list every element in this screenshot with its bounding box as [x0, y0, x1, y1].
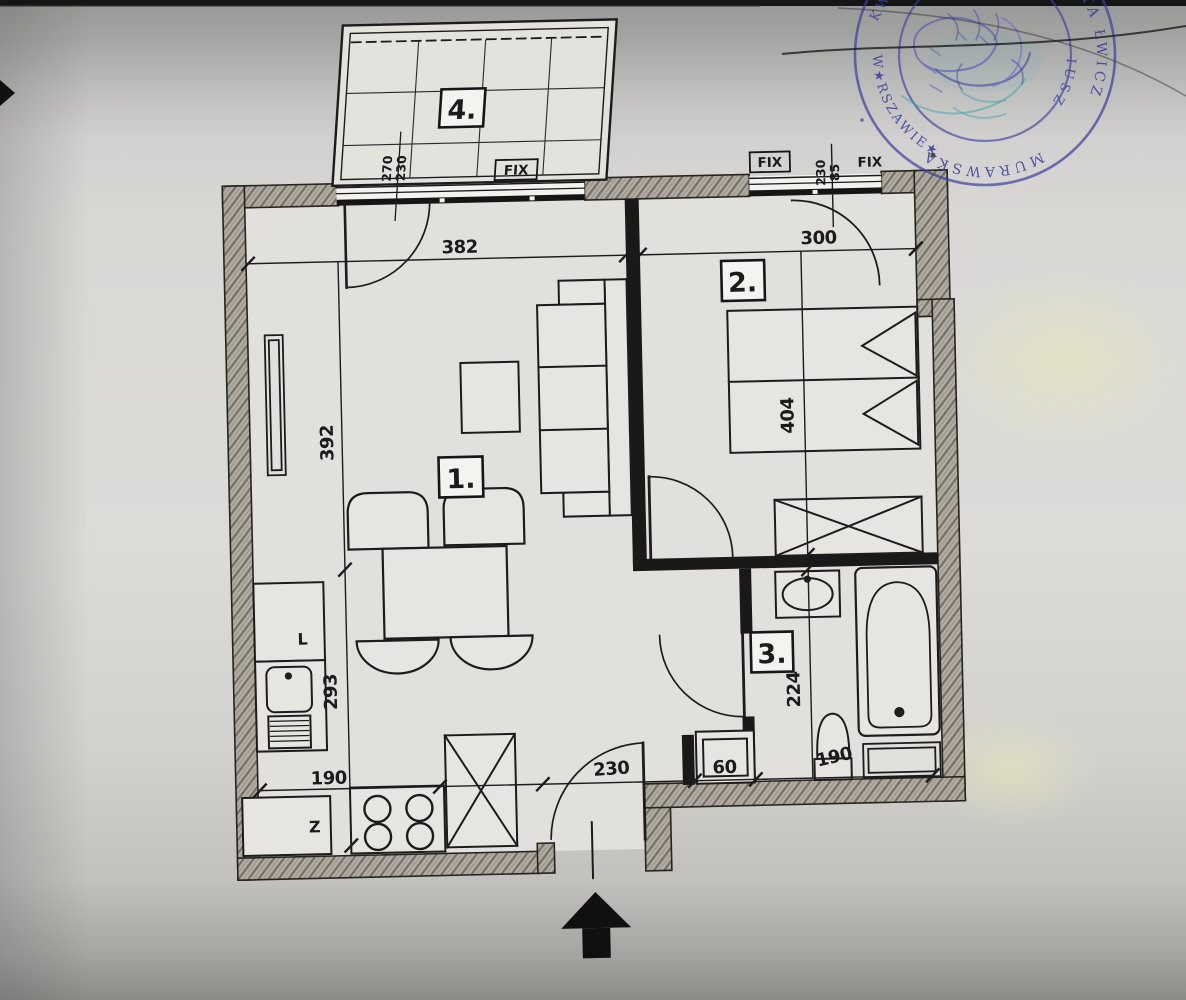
bathtub-drain-dot — [895, 708, 903, 716]
dim-bedroom-height: 404 — [777, 397, 799, 434]
left-edge-shadow — [0, 0, 90, 1000]
balcony-window-spec-height: 230 — [393, 155, 410, 182]
bed — [727, 307, 920, 453]
scanned-floor-plan-page: 4. FIX 270 230 — [0, 0, 1186, 1000]
fix-label-balcony: FIX — [503, 162, 529, 179]
basin-faucet-dot — [805, 577, 810, 582]
sink-faucet-dot — [286, 673, 291, 678]
wardrobe — [775, 497, 923, 556]
room-label-balcony: 4. — [447, 95, 478, 127]
bedroom-door-leaf — [649, 477, 651, 559]
dining-table — [383, 546, 509, 639]
dim-bathroom-height: 224 — [783, 671, 805, 708]
room-label-living: 1. — [446, 464, 476, 496]
paper-tint — [935, 270, 1186, 450]
bedroom-window-spec-width: 230 — [813, 159, 829, 186]
scanner-top-edge2 — [0, 5, 760, 7]
bedroom-window-spec-height: 85 — [827, 164, 842, 182]
dim-bedroom-width: 300 — [800, 227, 837, 249]
fix-label-bedroom: FIX — [757, 155, 783, 172]
dishwasher-label: Z — [309, 817, 321, 836]
room-label-bedroom: 2. — [728, 267, 758, 299]
dim-hall-width: 230 — [593, 757, 631, 781]
fix-label-right: FIX — [857, 154, 883, 171]
room-label-bathroom: 3. — [757, 639, 787, 671]
floor-plan: 4. FIX 270 230 — [0, 0, 1186, 1000]
fridge-label: L — [297, 630, 308, 649]
dim-kitchen-height: 293 — [320, 674, 342, 711]
fridge-unit — [253, 582, 325, 662]
dim-washer-width: 60 — [712, 757, 737, 779]
coffee-table — [460, 362, 520, 433]
dim-living-height: 392 — [317, 425, 339, 462]
sofa — [536, 279, 631, 517]
chair — [347, 492, 428, 550]
dim-living-width: 382 — [441, 237, 478, 259]
dim-kitchen-width: 190 — [310, 768, 347, 790]
bathtub — [855, 566, 940, 736]
entrance-axis-line — [592, 822, 593, 878]
bathroom-door-leaf — [743, 634, 745, 717]
